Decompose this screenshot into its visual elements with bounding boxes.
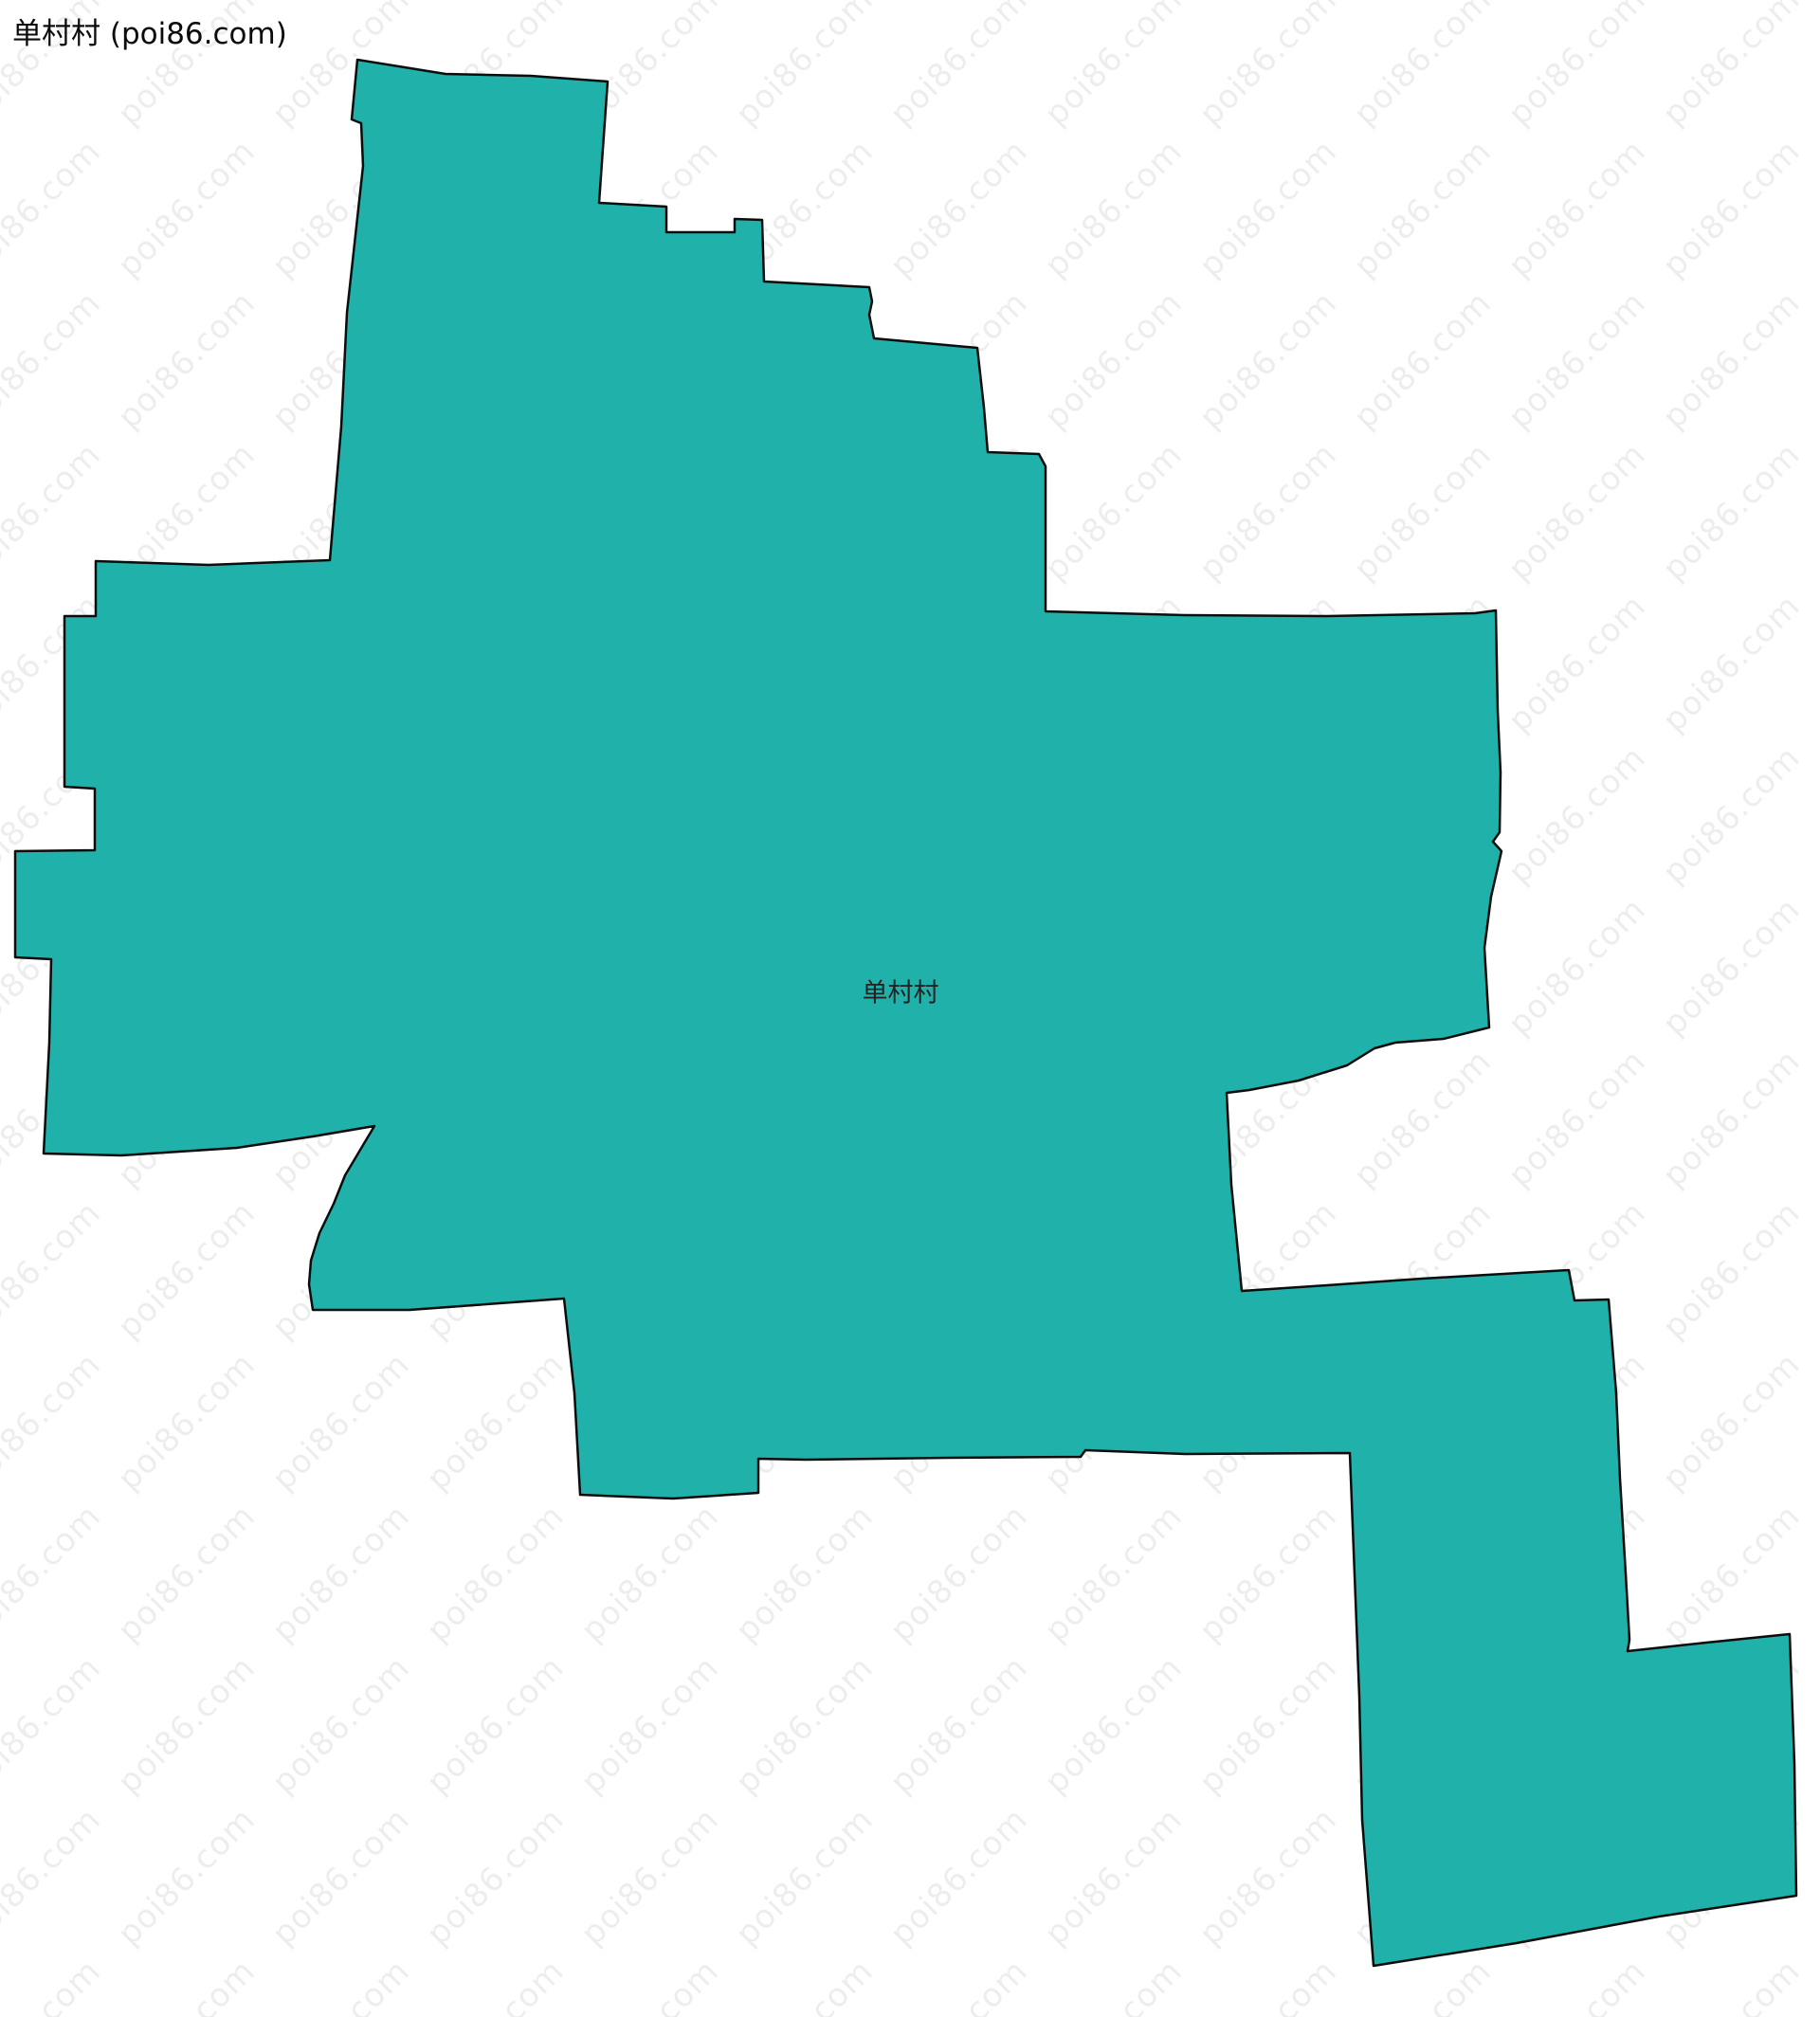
page-title: 单村村 (poi86.com) — [12, 9, 287, 52]
map-page: poi86.compoi86.compoi86.compoi86.compoi8… — [0, 0, 1820, 2017]
region-polygon[interactable] — [15, 60, 1796, 1966]
region-label: 单村村 — [863, 972, 939, 1009]
